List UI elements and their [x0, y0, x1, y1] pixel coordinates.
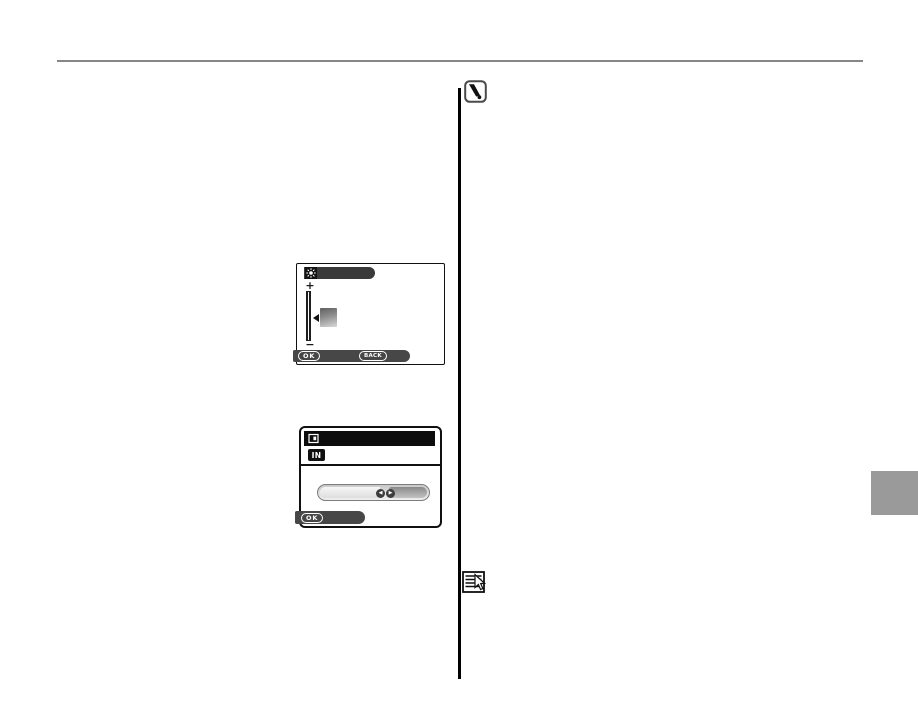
separator-line: [301, 464, 440, 466]
lcd-brightness-screen: + − OK BACK: [296, 263, 445, 365]
selection-bar: ◀ ▶: [317, 484, 430, 501]
slider-minus-label: −: [302, 340, 318, 350]
arrow-right-icon: ▶: [386, 489, 395, 498]
brightness-gradient-swatch: [320, 308, 337, 327]
lcd-format-screen: IN ◀ ▶ OK: [299, 426, 442, 528]
internal-memory-badge: IN: [308, 449, 325, 461]
ok-button-label: OK: [298, 351, 320, 361]
format-title-bar: [304, 431, 435, 446]
slider-plus-label: +: [302, 281, 318, 291]
note-memo-icon: [461, 570, 488, 595]
caution-icon: [464, 80, 487, 103]
manual-page: + − OK BACK IN ◀ ▶ OK: [0, 0, 918, 726]
frame-icon: [308, 429, 319, 448]
button-bar: OK BACK: [293, 350, 410, 362]
button-bar: OK: [295, 511, 365, 524]
header-rule: [57, 60, 863, 62]
sun-brightness-icon: [305, 267, 317, 279]
back-button-label: BACK: [359, 351, 387, 361]
page-edge-tab: [871, 471, 918, 515]
brightness-slider-handle: [313, 314, 319, 322]
ok-button-label: OK: [301, 513, 323, 523]
brightness-title-bar: [304, 267, 375, 279]
arrow-left-icon: ◀: [376, 489, 385, 498]
brightness-slider-track: [306, 291, 311, 341]
selection-bar-left-segment: [320, 487, 380, 498]
